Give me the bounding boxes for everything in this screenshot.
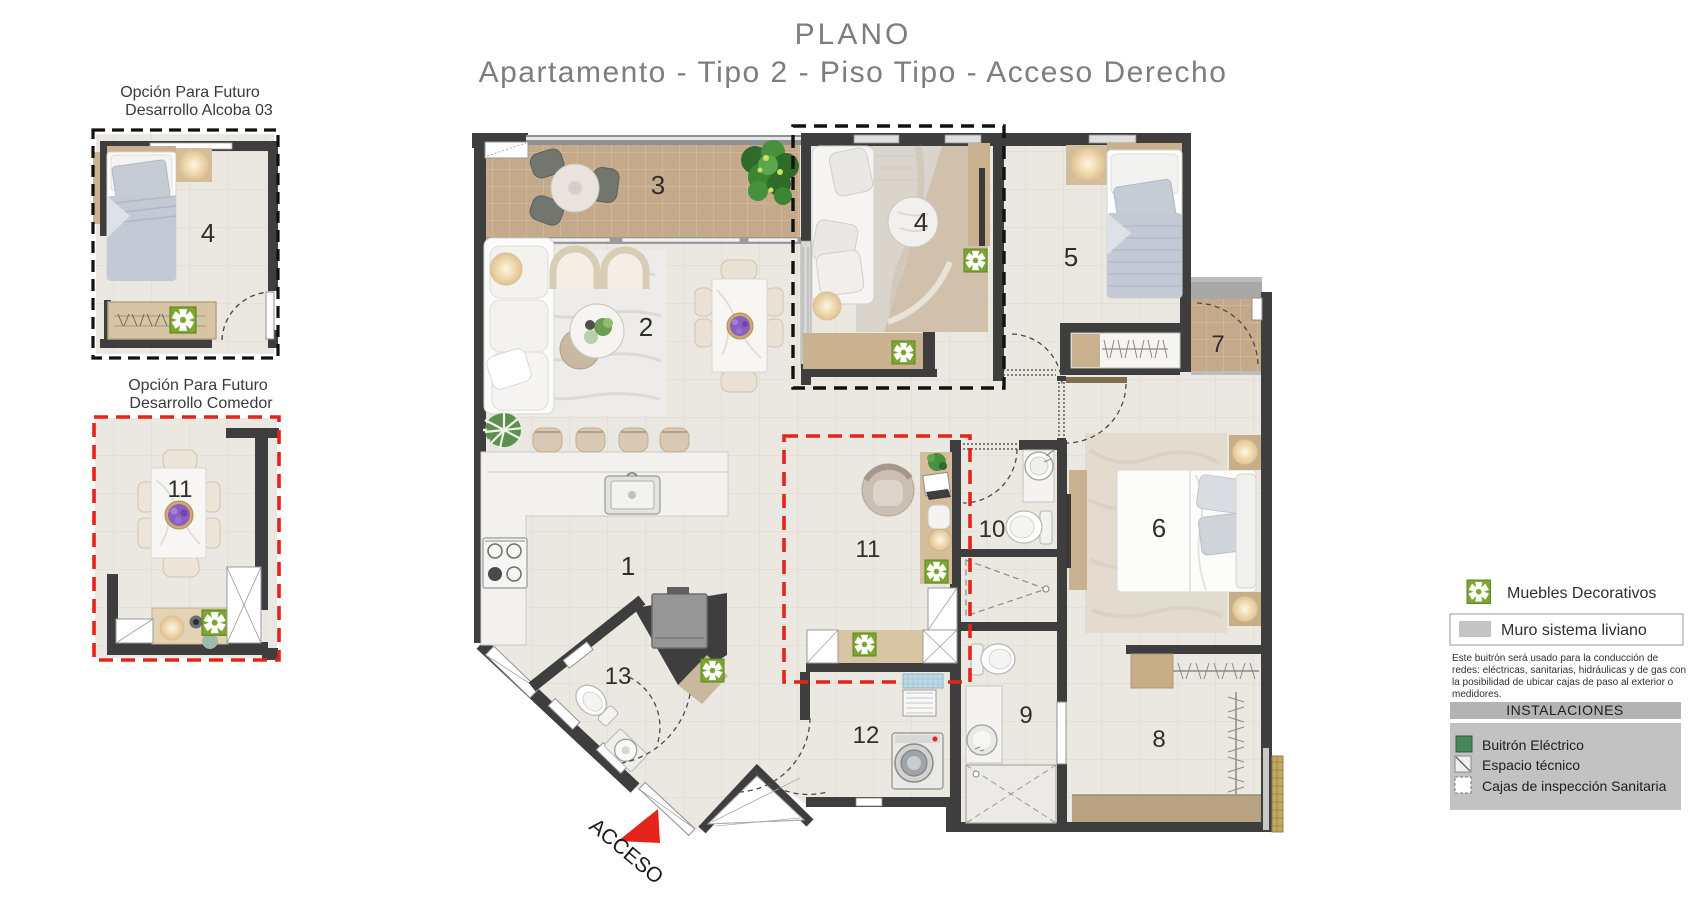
svg-text:11: 11 — [856, 536, 881, 563]
svg-text:2: 2 — [639, 312, 653, 342]
svg-text:Opción Para Futuro: Opción Para Futuro — [120, 84, 260, 101]
svg-text:1: 1 — [621, 551, 635, 581]
svg-text:PLANO: PLANO — [795, 18, 912, 51]
svg-text:Opción Para Futuro: Opción Para Futuro — [128, 377, 268, 394]
svg-text:INSTALACIONES: INSTALACIONES — [1506, 702, 1624, 718]
svg-text:Apartamento - Tipo 2 - Piso Ti: Apartamento - Tipo 2 - Piso Tipo - Acces… — [479, 56, 1228, 89]
svg-text:5: 5 — [1064, 242, 1078, 272]
svg-text:Buitrón Eléctrico: Buitrón Eléctrico — [1482, 737, 1584, 753]
svg-text:Muro sistema liviano: Muro sistema liviano — [1501, 622, 1647, 639]
svg-text:7: 7 — [1211, 331, 1224, 358]
svg-text:6: 6 — [1152, 513, 1166, 543]
svg-text:4: 4 — [201, 218, 215, 248]
svg-text:11: 11 — [168, 476, 193, 503]
svg-text:9: 9 — [1019, 702, 1032, 729]
svg-text:13: 13 — [605, 663, 632, 690]
svg-text:Desarrollo Comedor: Desarrollo Comedor — [129, 395, 273, 412]
svg-text:8: 8 — [1152, 726, 1165, 753]
svg-text:Desarrollo Alcoba 03: Desarrollo Alcoba 03 — [125, 102, 273, 119]
svg-text:Muebles Decorativos: Muebles Decorativos — [1507, 585, 1656, 602]
svg-text:la posibilidad de ubicar cajas: la posibilidad de ubicar cajas de paso a… — [1452, 677, 1674, 688]
svg-text:3: 3 — [651, 170, 665, 200]
svg-text:Este buitrón será usado para: Este buitrón será usado para la conducci… — [1452, 653, 1659, 664]
svg-text:12: 12 — [853, 722, 880, 749]
svg-text:4: 4 — [914, 207, 928, 237]
svg-text:redes: eléctricas, sanitarias,: redes: eléctricas, sanitarias, hidráulic… — [1452, 665, 1686, 676]
svg-text:10: 10 — [979, 516, 1006, 543]
svg-text:Cajas de inspección Sanitaria: Cajas de inspección Sanitaria — [1482, 778, 1667, 794]
svg-text:Espacio técnico: Espacio técnico — [1482, 757, 1580, 773]
svg-text:medidores.: medidores. — [1452, 689, 1501, 700]
